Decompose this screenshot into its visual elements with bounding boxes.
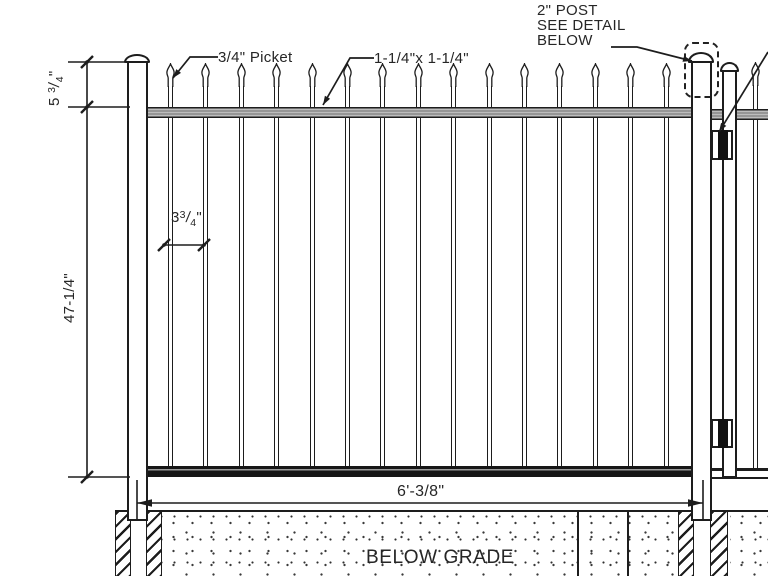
- fence-height-dimension: 47-1/4": [61, 273, 78, 323]
- gate-bottom-rail: [712, 468, 768, 479]
- footing-joint-line: [577, 512, 579, 576]
- dim-whole: 3: [171, 209, 180, 226]
- right-footing-hatch-left: [678, 512, 694, 576]
- picket-shaft: [593, 86, 598, 466]
- footing-joint-line: [627, 512, 629, 576]
- post-detail-callout-box: [684, 42, 719, 98]
- spear-tip-icon: [307, 63, 318, 87]
- picket: [625, 63, 636, 466]
- picket: [519, 63, 530, 466]
- picket-shaft: [345, 86, 350, 466]
- top-rail: [147, 107, 692, 118]
- bottom-rail: [147, 466, 692, 477]
- concrete-stipple-right: [730, 513, 768, 576]
- rail-size-label: 1-1/4"x 1-1/4": [374, 50, 469, 67]
- picket-shaft: [274, 86, 279, 466]
- picket-shaft: [416, 86, 421, 466]
- dim-denominator: 4: [54, 76, 66, 82]
- post-callout-line1: 2" POST: [537, 3, 626, 18]
- picket: [342, 63, 353, 466]
- picket-shaft: [664, 86, 669, 466]
- spear-tip-icon: [236, 63, 247, 87]
- gate-picket: [750, 62, 761, 468]
- picket: [271, 63, 282, 466]
- spear-tip-icon: [200, 63, 211, 87]
- spear-tip-icon: [165, 63, 176, 87]
- top-hinge-pin: [718, 130, 728, 160]
- right-footing-hatch-right: [710, 512, 728, 576]
- post-exposure-dimension: 5 3/4": [46, 71, 63, 107]
- picket-shaft: [451, 86, 456, 466]
- picket-shaft: [310, 86, 315, 466]
- picket-shaft: [522, 86, 527, 466]
- post-callout-label: 2" POST SEE DETAIL BELOW: [537, 3, 626, 49]
- picket: [484, 63, 495, 466]
- top-hinge: [711, 130, 733, 160]
- picket: [554, 63, 565, 466]
- picket-size-label: 3/4" Picket: [218, 49, 293, 66]
- left-footing-hatch-right: [146, 512, 162, 576]
- spear-tip-icon: [590, 63, 601, 87]
- picket-spacing-dimension: 33/4": [171, 209, 202, 226]
- left-post-cap: [124, 54, 150, 63]
- post-callout-line3: BELOW: [537, 33, 626, 48]
- bottom-hinge: [711, 419, 733, 448]
- spear-tip-icon: [519, 63, 530, 87]
- picket-shaft: [753, 85, 758, 468]
- picket: [165, 63, 176, 466]
- gate-post: [691, 61, 712, 521]
- picket: [200, 63, 211, 466]
- left-post: [127, 61, 148, 521]
- gate-upright-cap: [720, 62, 739, 72]
- picket-shaft: [487, 86, 492, 466]
- picket: [307, 63, 318, 466]
- dim-numerator: 3: [46, 87, 58, 93]
- spear-tip-icon: [484, 63, 495, 87]
- picket-shaft: [203, 86, 208, 466]
- dim-denominator: 4: [190, 217, 196, 229]
- spear-tip-icon: [661, 63, 672, 87]
- spear-tip-icon: [625, 63, 636, 87]
- picket-shaft: [628, 86, 633, 466]
- gate-top-rail: [712, 109, 768, 120]
- panel-width-dimension: 6'-3/8": [397, 483, 444, 501]
- picket: [590, 63, 601, 466]
- picket-shaft: [239, 86, 244, 466]
- dim-unit: ": [196, 209, 202, 226]
- grade-line: [115, 510, 768, 512]
- picket-shaft: [380, 86, 385, 466]
- picket: [413, 63, 424, 466]
- bottom-hinge-pin: [718, 419, 728, 448]
- picket: [377, 63, 388, 466]
- spear-tip-icon: [342, 63, 353, 87]
- post-callout-line2: SEE DETAIL: [537, 18, 626, 33]
- left-footing-hatch-left: [115, 512, 131, 576]
- picket-shaft: [168, 86, 173, 466]
- below-grade-label: BELOW GRADE: [366, 547, 514, 569]
- spear-tip-icon: [271, 63, 282, 87]
- picket-shaft: [557, 86, 562, 466]
- spear-tip-icon: [554, 63, 565, 87]
- spear-tip-icon: [750, 62, 761, 86]
- picket: [236, 63, 247, 466]
- fence-elevation-drawing: 3/4" Picket 1-1/4"x 1-1/4" 2" POST SEE D…: [0, 0, 768, 576]
- picket: [661, 63, 672, 466]
- picket: [448, 63, 459, 466]
- dim-whole: 5: [46, 97, 63, 106]
